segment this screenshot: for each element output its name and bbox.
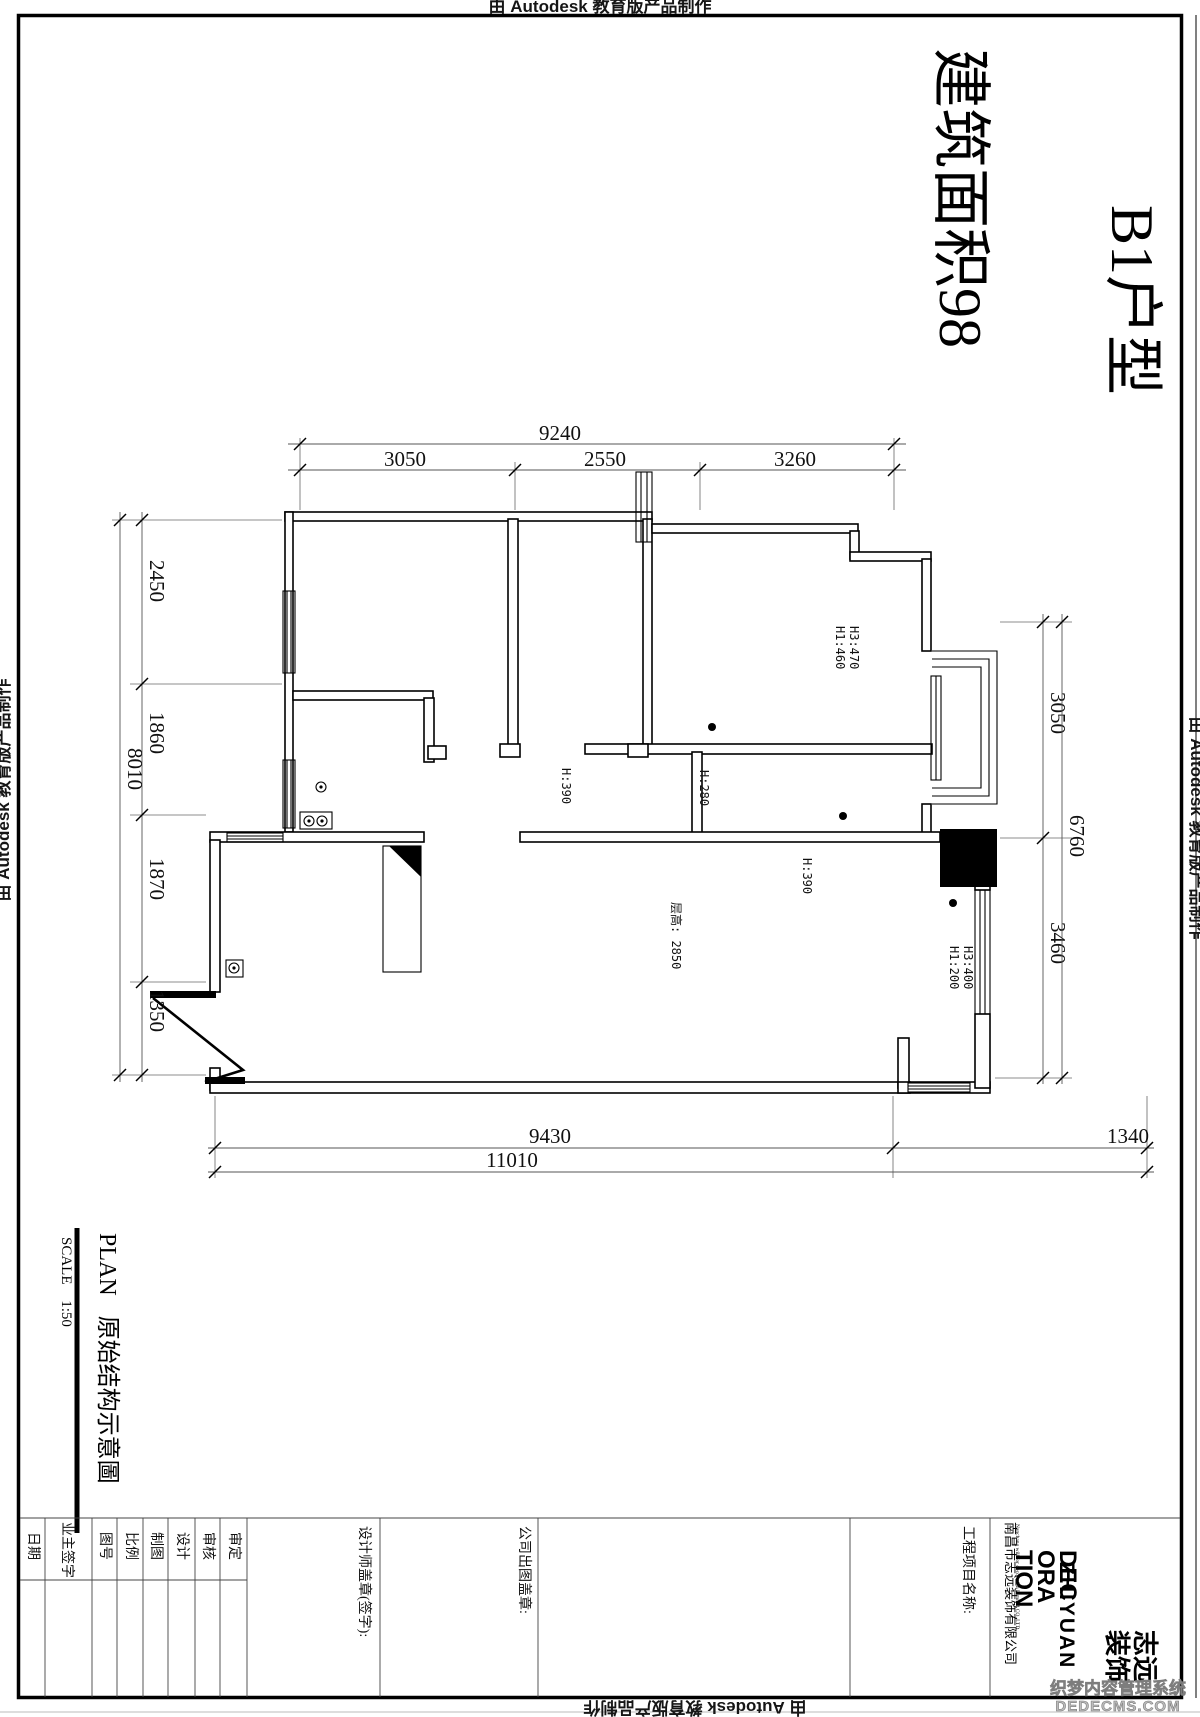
field-zhitu: 制图 <box>148 1532 164 1560</box>
dedecms-watermark: 织梦内容管理系统 DEDECMS.COM <box>1050 1678 1186 1715</box>
dining-window-h1: H1:200 <box>947 946 961 989</box>
title-block-fields: 审定 审核 设计 制图 比例 图号 业主签字 日期 <box>25 1522 242 1578</box>
plan-labels: 层高: 2850 H:390 H:280 H:390 H1:460 H3:470… <box>559 626 975 989</box>
seal-line1: 志远 <box>1130 1630 1159 1682</box>
sheet-title-line1: B1户型 <box>1099 205 1165 395</box>
sheet-title: B1户型 建筑面积98 <box>927 48 1165 395</box>
field-owner-signature: 业主签字 <box>59 1522 76 1578</box>
dim-right-overall: 6760 <box>1065 815 1089 857</box>
drawing-name: 原始结构示意圖 <box>94 1316 121 1484</box>
logo-line-zhiyuan: ZHIYUAN <box>1055 1562 1078 1669</box>
designer-stamp-label: 设计师盖章(签字): <box>356 1526 373 1637</box>
fridge-symbol <box>383 846 421 972</box>
dim-right-seg2: 3460 <box>1046 922 1070 964</box>
beam-h390-right: H:390 <box>800 858 814 894</box>
shaft-column <box>940 829 997 887</box>
dim-left-seg1: 2450 <box>145 560 169 602</box>
window-right-lower <box>975 890 990 1014</box>
logo-line-tion: TION <box>1010 1550 1037 1607</box>
floor-height-label: 层高: 2850 <box>669 902 684 969</box>
autodesk-banner-top: 由 Autodesk 教育版产品制作 <box>489 0 712 16</box>
company-stamp-label: 公司出图盖章: <box>516 1526 533 1614</box>
drawing-sheet: 由 Autodesk 教育版产品制作 由 Autodesk 教育版产品制作 由 … <box>0 0 1200 1717</box>
dim-top-seg1: 3050 <box>384 447 426 471</box>
dim-top-seg3: 3260 <box>774 447 816 471</box>
watermark-line2: DEDECMS.COM <box>1055 1698 1180 1715</box>
dim-left-seg4: 1350 <box>145 990 169 1032</box>
dim-bottom-seg2: 1340 <box>1107 1124 1149 1148</box>
scale-label: SCALE <box>58 1237 74 1285</box>
drawing-title-block: PLAN 原始结构示意圖 SCALE 1:50 <box>58 1228 121 1533</box>
dim-top-seg2: 2550 <box>584 447 626 471</box>
dim-top: 9240 3050 2550 3260 <box>288 421 906 510</box>
sheet-title-line2: 建筑面积98 <box>927 48 993 348</box>
beam-h280: H:280 <box>697 770 711 806</box>
watermark-line1: 织梦内容管理系统 <box>1050 1678 1186 1698</box>
bay-window <box>931 651 997 804</box>
autodesk-banner-bottom: 由 Autodesk 教育版产品制作 <box>584 1698 807 1717</box>
field-tuhao: 图号 <box>97 1532 112 1560</box>
dim-bottom: 9430 1340 11010 <box>208 1096 1154 1178</box>
dining-window-h3: H3:400 <box>961 946 975 989</box>
autodesk-banner-left: 由 Autodesk 教育版产品制作 <box>0 679 13 902</box>
company-seal: 志远 装饰 <box>1102 1630 1159 1682</box>
field-sheji: 设计 <box>174 1532 190 1560</box>
field-riqi: 日期 <box>25 1532 41 1560</box>
dim-top-overall: 9240 <box>539 421 581 445</box>
stove-symbol <box>300 812 332 829</box>
walls <box>210 512 990 1093</box>
dim-bottom-overall: 11010 <box>486 1148 538 1172</box>
floor-plan: 层高: 2850 H:390 H:280 H:390 H1:460 H3:470… <box>150 472 997 1093</box>
title-block: 审定 审核 设计 制图 比例 图号 业主签字 日期 设计师盖章(签字): 公司出… <box>20 1518 1180 1697</box>
fixtures <box>226 723 957 977</box>
dim-bottom-seg1: 9430 <box>529 1124 571 1148</box>
scale-value: 1:50 <box>58 1300 74 1327</box>
field-bili: 比例 <box>123 1532 139 1560</box>
project-name-label: 工程项目名称: <box>960 1526 976 1614</box>
dimensions: 9240 3050 2550 3260 2450 1860 1870 <box>112 421 1154 1178</box>
drawing-scale: SCALE 1:50 <box>58 1237 74 1327</box>
drain-symbol <box>226 960 243 977</box>
sheet-border <box>0 15 1200 1712</box>
dim-right: 3050 3460 6760 <box>995 614 1089 1084</box>
field-shenhe: 审核 <box>200 1532 216 1560</box>
dim-right-seg1: 3050 <box>1046 692 1070 734</box>
dim-left-seg3: 1870 <box>145 858 169 900</box>
company-block: 南昌市志远装饰有限公司 Nanchang will for decoration… <box>1003 1522 1159 1682</box>
master-window-h3: H3:470 <box>847 626 861 669</box>
dim-left-seg2: 1860 <box>145 712 169 754</box>
seal-line2: 装饰 <box>1102 1630 1131 1682</box>
dim-left-overall: 8010 <box>123 748 147 790</box>
windows <box>227 472 990 1092</box>
autodesk-banners: 由 Autodesk 教育版产品制作 由 Autodesk 教育版产品制作 由 … <box>0 0 1200 1717</box>
beam-h390-left: H:390 <box>559 768 573 804</box>
field-shending: 审定 <box>226 1532 242 1560</box>
drawing-type: PLAN <box>94 1233 120 1296</box>
master-window-h1: H1:460 <box>833 626 847 669</box>
autodesk-banner-right: 由 Autodesk 教育版产品制作 <box>1187 717 1200 940</box>
drawing-type-label: PLAN 原始结构示意圖 <box>94 1233 121 1484</box>
